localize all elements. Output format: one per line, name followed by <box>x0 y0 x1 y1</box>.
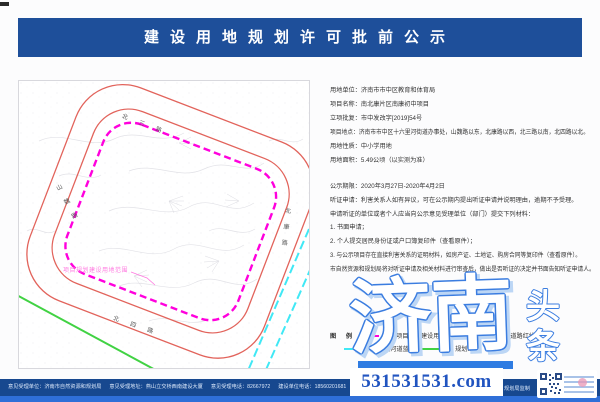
notice-line: 2. 个人提交居民身份证或户口簿复印件（查看原件）； <box>330 235 596 249</box>
qr-panel <box>537 370 597 398</box>
qr-code <box>540 373 562 395</box>
svg-text:头: 头 <box>526 287 560 327</box>
legend-label: 规划绿线 <box>455 344 480 353</box>
legend-swatch-river <box>344 348 372 350</box>
info-line: 用地单位：济南市市中区教育和体育局 <box>330 84 596 98</box>
legend-label: 规划河道蓝线 <box>378 344 415 353</box>
info-line: 用地性质：中小学用地 <box>330 140 596 154</box>
site-plan-drawing <box>19 81 309 368</box>
legend-title: 图 例 <box>330 331 356 340</box>
project-info: 用地单位：济南市市中区教育和体育局 项目名称：南北康片区南康初中项目 立项批复：… <box>330 84 596 168</box>
footer-bottom-strip <box>0 396 600 402</box>
site-plan-map: 北三路 山魏路 北康路 北四路 项目规划建设用地范围 <box>18 80 310 369</box>
footer-item: 意见受理单位：济南市自然资源和规划局 <box>8 383 101 390</box>
footer-item: 意见受理电话：82667972 <box>211 383 270 390</box>
legend-label: 项目规划建设用地范围 <box>396 331 458 340</box>
notice-line: 3. 与公示项目存在直接利害关系的证明材料，如房产证、土地证、购房合同等复印件（… <box>330 249 577 263</box>
legend: 图 例 项目规划建设用地范围 规划道路红线 规划河道蓝线 规划绿线 <box>330 329 596 355</box>
legend-row: 图 例 项目规划建设用地范围 规划道路红线 <box>330 329 596 342</box>
legend-swatch-road <box>464 335 492 337</box>
footer-item: 建设单位电话：18560201681 <box>278 383 346 390</box>
notice-line: 公示期限：2020年3月27日-2020年4月2日 <box>330 180 596 194</box>
info-line: 立项批复：市中发改字[2019]54号 <box>330 112 596 126</box>
footer-item: 意见受理地址：燕山立交桥西南建设大厦 <box>109 383 202 390</box>
notice-poster: { "header": { "title": "建设用地规划许可批前公示" },… <box>0 0 600 402</box>
page-title: 建设用地规划许可批前公示 <box>18 18 582 57</box>
legend-swatch-boundary <box>362 335 390 337</box>
legend-row: 规划河道蓝线 规划绿线 <box>344 342 596 355</box>
corner-mark <box>0 2 9 6</box>
legend-swatch-green <box>421 348 449 350</box>
info-line: 项目地点：济南市市中区十六里河街道办事处，山魏路以东，北康路以西，北三路以南，北… <box>330 126 577 140</box>
footer-contact-info: 意见受理单位：济南市自然资源和规划局 意见受理地址：燕山立交桥西南建设大厦 意见… <box>8 383 346 390</box>
hearing-notice: 公示期限：2020年3月27日-2020年4月2日 听证申请：利害关系人如有异议… <box>330 180 596 277</box>
info-line: 用地面积：5.49公顷（以实测为准） <box>330 154 596 168</box>
watermark-url: 531531531.com <box>350 368 503 396</box>
notice-line: 1. 书面申请； <box>330 221 596 235</box>
notice-line: 听证申请：利害关系人如有异议，可在公示期内提出听证申请并说明理由，逾期不予受理。 <box>330 194 596 208</box>
notice-line: 申请听证的单位或者个人应当向公示意见受理单位（部门）提交下列材料： <box>330 208 596 222</box>
info-line: 项目名称：南北康片区南康初中项目 <box>330 98 596 112</box>
seal-icon <box>578 378 587 387</box>
notice-line: 市自然资源和规划局将对听证申请及相关材料进行审查后，做出是否听证的决定并书面告知… <box>330 263 577 277</box>
footer-producer: 规划局监制 <box>504 385 530 392</box>
legend-label: 规划道路红线 <box>498 331 535 340</box>
boundary-label: 项目规划建设用地范围 <box>63 265 128 274</box>
